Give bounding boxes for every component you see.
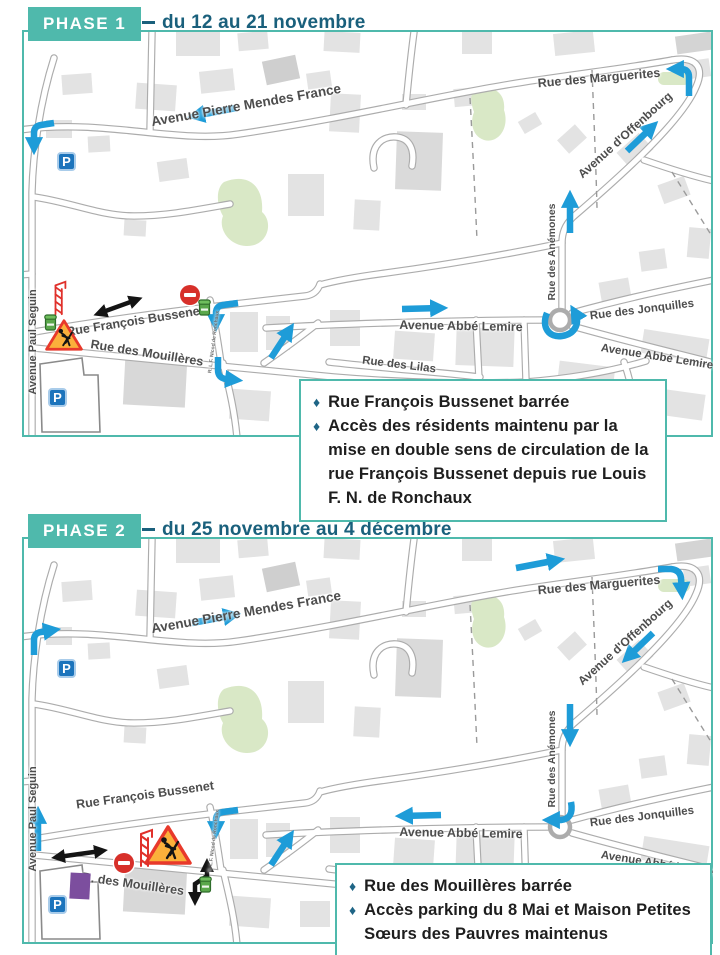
note-text: Rue des Mouillères barrée	[364, 874, 572, 898]
street-label-lemire-west: Avenue Abbé Lemire	[399, 318, 523, 334]
arrow-marguerites-eastbound	[516, 560, 558, 568]
parking-icon: P	[57, 659, 76, 678]
arrow-lemire-eastbound	[402, 308, 441, 309]
diamond-bullet-icon: ♦	[313, 414, 320, 438]
phase2-title: du 25 novembre au 4 décembre	[142, 519, 452, 541]
phase1-note-box: ♦ Rue François Bussenet barrée ♦ Accès d…	[299, 379, 667, 522]
two-way-arrow-bussenet	[100, 300, 136, 313]
two-way-arrow-mouilleres	[58, 851, 101, 857]
phase2-map: Avenue Pierre Mendes France Rue des Marg…	[22, 537, 713, 944]
phase1-badge: PHASE 1	[28, 7, 141, 41]
roadworks-infographic: PHASE 1 du 12 au 21 novembre Avenue Pier…	[0, 0, 720, 955]
phase1-double-sens-arrow	[100, 300, 136, 313]
street-label-anemones: Rue des Anémones	[546, 203, 558, 300]
note-item: ♦ Rue François Bussenet barrée	[313, 390, 653, 414]
phase1-title: du 12 au 21 novembre	[142, 12, 366, 34]
phase2-note-box: ♦ Rue des Mouillères barrée ♦ Accès park…	[335, 863, 712, 955]
no-entry-icon	[114, 853, 134, 873]
parking-icon: P	[57, 152, 76, 171]
waste-container-icon	[198, 299, 211, 321]
parking-icon: P	[48, 388, 67, 407]
note-item: ♦ Rue des Mouillères barrée	[349, 874, 698, 898]
diamond-bullet-icon: ♦	[349, 898, 356, 922]
waste-container-icon	[44, 314, 57, 336]
phase1-map: Avenue Pierre Mendes France Rue des Marg…	[22, 30, 713, 437]
street-label-seguin: Avenue Paul Seguin	[27, 289, 39, 394]
street-label-seguin: Avenue Paul Seguin	[27, 766, 39, 871]
note-item: ♦ Accès des résidents maintenu par la mi…	[313, 414, 653, 510]
waste-container-icon	[199, 876, 212, 898]
phase1-map-canvas	[24, 32, 711, 435]
phase2-badge: PHASE 2	[28, 514, 141, 548]
note-item: ♦ Accès parking du 8 Mai et Maison Petit…	[349, 898, 698, 946]
crane-icon	[137, 828, 155, 873]
diamond-bullet-icon: ♦	[313, 390, 320, 414]
no-entry-icon	[180, 285, 200, 305]
street-label-anemones: Rue des Anémones	[546, 710, 558, 807]
note-text: Accès des résidents maintenu par la mise…	[328, 414, 653, 510]
parking-icon: P	[48, 895, 67, 914]
highlighted-building	[69, 872, 90, 899]
note-text: Accès parking du 8 Mai et Maison Petites…	[364, 898, 698, 946]
arrow-lemire-westbound	[402, 815, 441, 816]
diamond-bullet-icon: ♦	[349, 874, 356, 898]
street-label-lemire-west: Avenue Abbé Lemire	[399, 825, 523, 841]
note-text: Rue François Bussenet barrée	[328, 390, 569, 414]
